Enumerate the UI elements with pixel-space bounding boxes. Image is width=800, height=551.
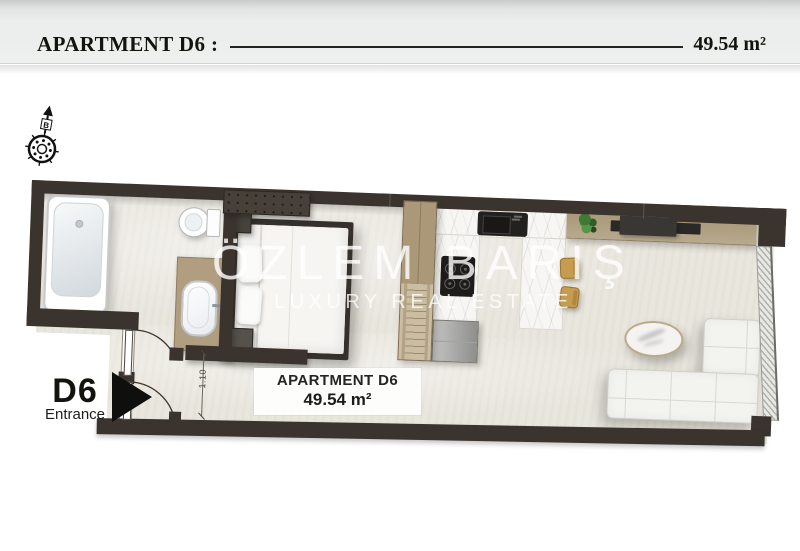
floor-plan-sheet: APARTMENT D6 : 49.54 m² B [0, 0, 800, 551]
header-divider-line [230, 46, 683, 48]
bar-stool [560, 257, 580, 279]
header-row: APARTMENT D6 : 49.54 m² [37, 30, 766, 58]
pillow [238, 244, 263, 282]
toilet-tank [206, 209, 221, 238]
kitchen-tall-cabinet [397, 200, 437, 361]
burner-icon [459, 278, 470, 289]
cooktop [440, 256, 476, 297]
pillow [236, 286, 263, 326]
compass-rose-icon: B [22, 103, 66, 173]
refrigerator [431, 319, 479, 363]
page-title: APARTMENT D6 : [37, 32, 218, 57]
vanity-sink-inner [186, 286, 210, 329]
wall-corner-top-right [758, 208, 786, 247]
apartment-badge: APARTMENT D6 49.54 m² [254, 368, 421, 415]
entrance-arrow-icon [112, 372, 152, 422]
apartment-badge-title: APARTMENT D6 [254, 372, 421, 389]
sofa-chaise [702, 318, 761, 378]
toilet-bowl [184, 213, 203, 232]
burner-icon [460, 263, 471, 274]
sectional-sofa [606, 368, 759, 424]
wardrobe [223, 189, 311, 216]
burner-icon [444, 278, 455, 289]
burner-icon [445, 263, 456, 274]
bathtub-basin [51, 202, 105, 298]
dimension-label: 1.10 [197, 366, 210, 392]
bar-stool [559, 286, 580, 309]
header-bar: APARTMENT D6 : 49.54 m² [0, 0, 800, 64]
kitchen-sink [477, 211, 528, 237]
apartment-badge-area: 49.54 m² [254, 390, 421, 410]
duvet [256, 225, 349, 354]
wall-door-stop [169, 347, 183, 361]
entrance-text-label: Entrance [30, 406, 120, 423]
vanity-cabinet [174, 257, 226, 353]
header-area-value: 49.54 m² [693, 33, 766, 56]
bar-counter [519, 237, 566, 331]
floor-plan: 1.10 [22, 180, 789, 467]
header-shadow [0, 65, 800, 74]
tv-soundbar [619, 216, 677, 237]
bathtub [43, 195, 111, 315]
vanity-sink [180, 280, 218, 337]
